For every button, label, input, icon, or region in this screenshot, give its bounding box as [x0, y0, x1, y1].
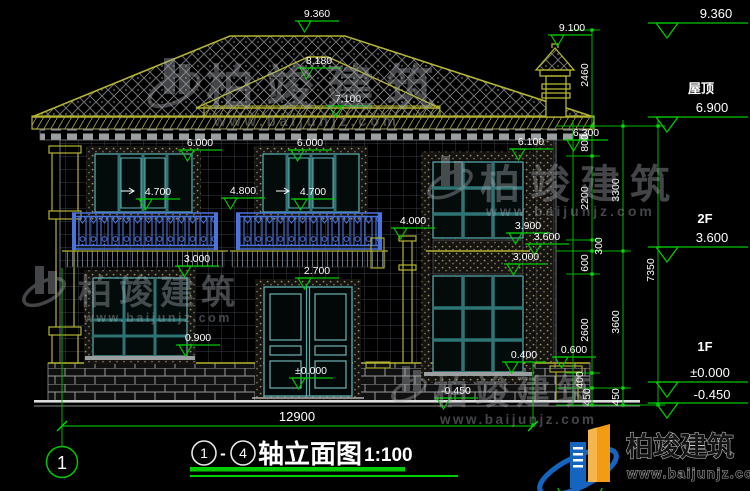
brand-logo-url: www.baijunjz.com [626, 466, 750, 481]
watermark-left: 柏竣建筑 www.baijunjz.com [20, 266, 242, 325]
svg-text:柏竣建筑: 柏竣建筑 [434, 373, 598, 412]
level-2f-label: 2F [697, 211, 712, 226]
balcony-center [230, 213, 388, 268]
mark-3000-right: 3.000 [513, 251, 539, 263]
brand-logo: 柏竣建筑 www.baijunjz.com [534, 424, 750, 491]
vdim-600: 600 [579, 254, 591, 272]
mark-6300: 6.300 [573, 127, 599, 139]
svg-text:柏竣建筑: 柏竣建筑 [78, 273, 242, 312]
mark-9100: 9.100 [559, 22, 585, 34]
elevation-drawing-canvas: 2460 800 2200 3300 300 600 7350 2600 360… [0, 0, 750, 491]
vdim-3600: 3600 [610, 310, 622, 334]
window-2f-center [258, 150, 364, 216]
level-roof-label: 屋顶 [688, 81, 714, 96]
vdim-300: 300 [593, 237, 605, 255]
mark-4800: 4.800 [230, 185, 256, 197]
mark-0400: 0.400 [511, 349, 537, 361]
brand-logo-icon [534, 424, 623, 491]
level-top-value: 9.360 [700, 6, 733, 21]
axis-bubble-1-label: 1 [57, 453, 67, 473]
drawing-scale: 1:100 [364, 445, 413, 466]
brand-logo-name: 柏竣建筑 [626, 431, 734, 462]
level-2f-value: 3.600 [696, 230, 729, 245]
mark-2700: 2.700 [304, 265, 330, 277]
mark-4700-left: 4.700 [145, 186, 171, 198]
mark-4000: 4.000 [400, 215, 426, 227]
mark-0900: 0.900 [185, 332, 211, 344]
svg-text:www.baijunjz.com: www.baijunjz.com [439, 412, 597, 427]
entrance-door [248, 283, 368, 401]
level-column-right: 9.360 屋顶 6.900 2F 3.600 1F ±0.000 -0.450 [648, 6, 748, 418]
level-1f-value: ±0.000 [690, 365, 730, 380]
mark-6100: 6.100 [518, 136, 544, 148]
title-axis-from: 1 [200, 445, 208, 461]
vdim-2600: 2600 [579, 318, 591, 342]
overall-width-dim: 12900 [279, 409, 315, 424]
brick-plinth-left [48, 363, 259, 402]
drawing-title: 轴立面图 [258, 439, 362, 469]
mark-6000-center: 6.000 [297, 137, 323, 149]
title-block: 1 - 4 轴立面图 1:100 [190, 439, 458, 477]
svg-text:柏竣建筑: 柏竣建筑 [480, 163, 680, 207]
mark-4700-center: 4.700 [300, 186, 326, 198]
level-below-value: -0.450 [694, 387, 731, 402]
mark-6000-left: 6.000 [187, 137, 213, 149]
svg-text:柏竣建筑: 柏竣建筑 [206, 62, 446, 115]
mark-3000-left: 3.000 [184, 253, 210, 265]
mark-3600: 3.600 [534, 231, 560, 243]
svg-text:www.baijunjz.com: www.baijunjz.com [213, 113, 399, 130]
svg-text:www.baijunjz.com: www.baijunjz.com [485, 203, 655, 219]
mark-0600: 0.600 [561, 344, 587, 356]
mark-pm0000: ±0.000 [295, 365, 327, 377]
vdim-450b: 450 [610, 388, 622, 406]
level-1f-label: 1F [697, 339, 712, 354]
vdim-7350: 7350 [645, 258, 657, 282]
title-axis-to: 4 [239, 445, 247, 461]
cad-elevation-screenshot: 2460 800 2200 3300 300 600 7350 2600 360… [0, 0, 750, 491]
svg-text:www.baijunjz.com: www.baijunjz.com [83, 311, 232, 325]
mark-9360: 9.360 [304, 8, 330, 20]
vdim-2460: 2460 [579, 63, 591, 87]
title-separator: - [220, 444, 226, 463]
level-roof-value: 6.900 [696, 100, 729, 115]
